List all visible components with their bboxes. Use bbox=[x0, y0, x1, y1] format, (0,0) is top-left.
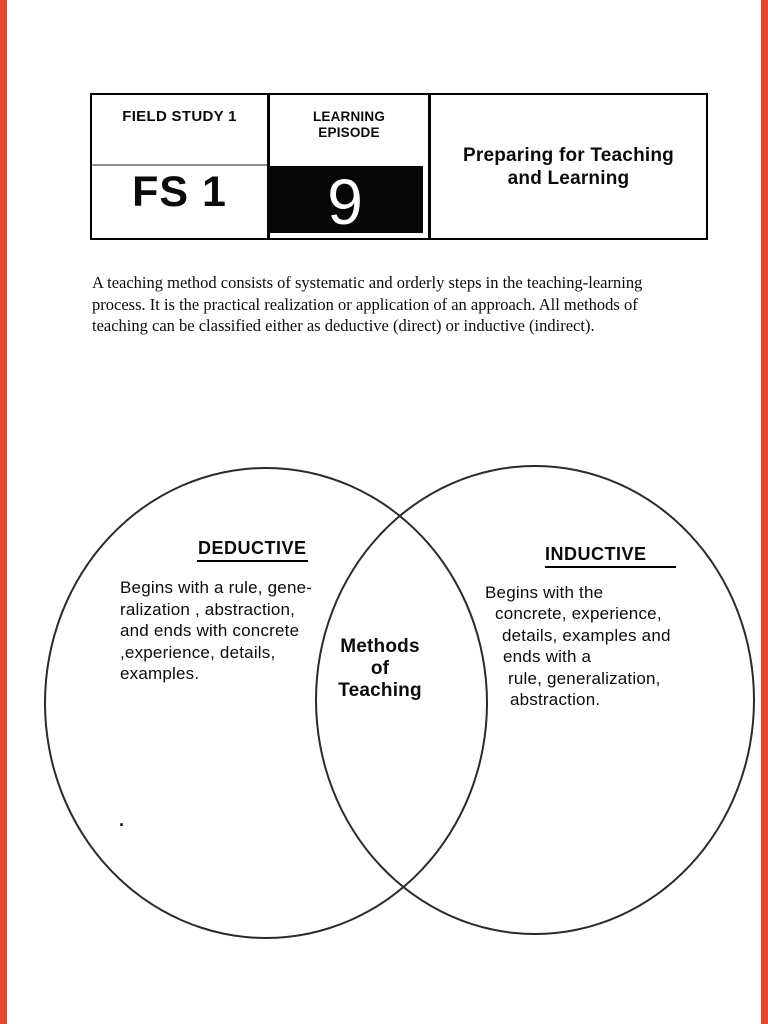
episode-number: 9 bbox=[327, 170, 363, 234]
deductive-line-4: ,experience, details, bbox=[120, 642, 312, 664]
deductive-line-5: examples. bbox=[120, 663, 312, 685]
intro-line-3: teaching can be classified either as ded… bbox=[92, 315, 642, 337]
inductive-line-4: ends with a bbox=[503, 646, 671, 667]
inductive-line-6: abstraction. bbox=[510, 689, 671, 710]
deductive-line-3: and ends with concrete bbox=[120, 620, 312, 642]
deductive-description: Begins with a rule, gene- ralization , a… bbox=[120, 577, 312, 685]
stray-period-mark: . bbox=[119, 810, 124, 831]
left-edge-strip bbox=[0, 0, 7, 1024]
venn-center-line-2: of bbox=[330, 658, 430, 680]
episode-number-cell: 9 bbox=[267, 166, 423, 233]
episode-title-line2: and Learning bbox=[463, 167, 674, 190]
inductive-heading: INDUCTIVE bbox=[545, 544, 676, 568]
course-code: FS 1 bbox=[92, 171, 267, 214]
venn-center-line-1: Methods bbox=[330, 636, 430, 658]
learning-episode-line2: EPISODE bbox=[270, 125, 428, 141]
right-edge-strip bbox=[761, 0, 768, 1024]
inductive-description: Begins with the concrete, experience, de… bbox=[485, 582, 671, 710]
episode-title: Preparing for Teaching and Learning bbox=[431, 95, 706, 238]
field-study-label: FIELD STUDY 1 bbox=[92, 108, 267, 125]
venn-center-label: Methods of Teaching bbox=[330, 636, 430, 702]
learning-episode-line1: LEARNING bbox=[270, 109, 428, 125]
deductive-line-1: Begins with a rule, gene- bbox=[120, 577, 312, 599]
episode-title-line1: Preparing for Teaching bbox=[463, 144, 674, 167]
inductive-line-5: rule, generalization, bbox=[508, 668, 671, 689]
intro-line-1: A teaching method consists of systematic… bbox=[92, 272, 642, 294]
learning-episode-label: LEARNING EPISODE bbox=[270, 109, 428, 141]
header-table: FIELD STUDY 1 LEARNING EPISODE FS 1 9 Pr… bbox=[90, 93, 708, 240]
inductive-line-1: Begins with the bbox=[485, 582, 671, 603]
deductive-heading: DEDUCTIVE bbox=[197, 538, 308, 562]
venn-center-line-3: Teaching bbox=[330, 680, 430, 702]
table-row-divider bbox=[92, 164, 267, 166]
inductive-line-2: concrete, experience, bbox=[495, 603, 671, 624]
inductive-line-3: details, examples and bbox=[502, 625, 671, 646]
intro-paragraph: A teaching method consists of systematic… bbox=[92, 272, 642, 337]
intro-line-2: process. It is the practical realization… bbox=[92, 294, 642, 316]
deductive-line-2: ralization , abstraction, bbox=[120, 599, 312, 621]
